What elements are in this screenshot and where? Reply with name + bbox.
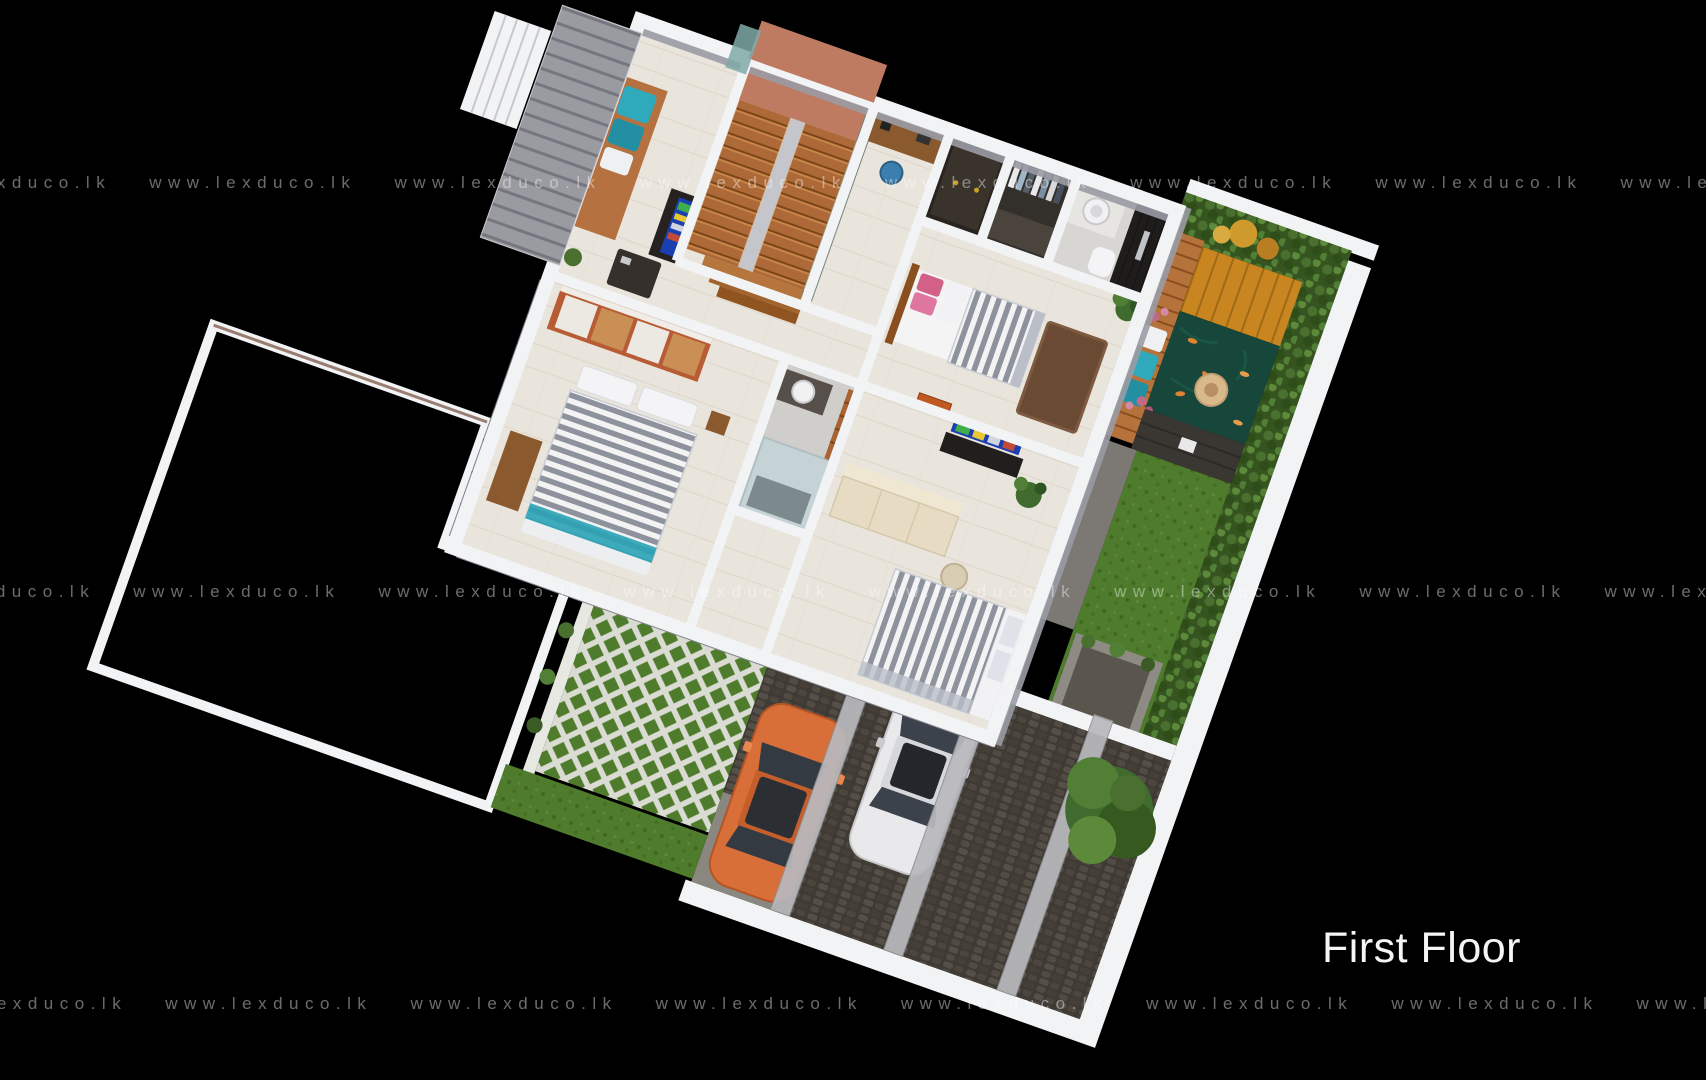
floor-plan-render <box>0 0 1706 1080</box>
floor-title: First Floor <box>1322 924 1521 973</box>
render-canvas: www.lexduco.lkwww.lexduco.lkwww.lexduco.… <box>0 0 1706 1080</box>
